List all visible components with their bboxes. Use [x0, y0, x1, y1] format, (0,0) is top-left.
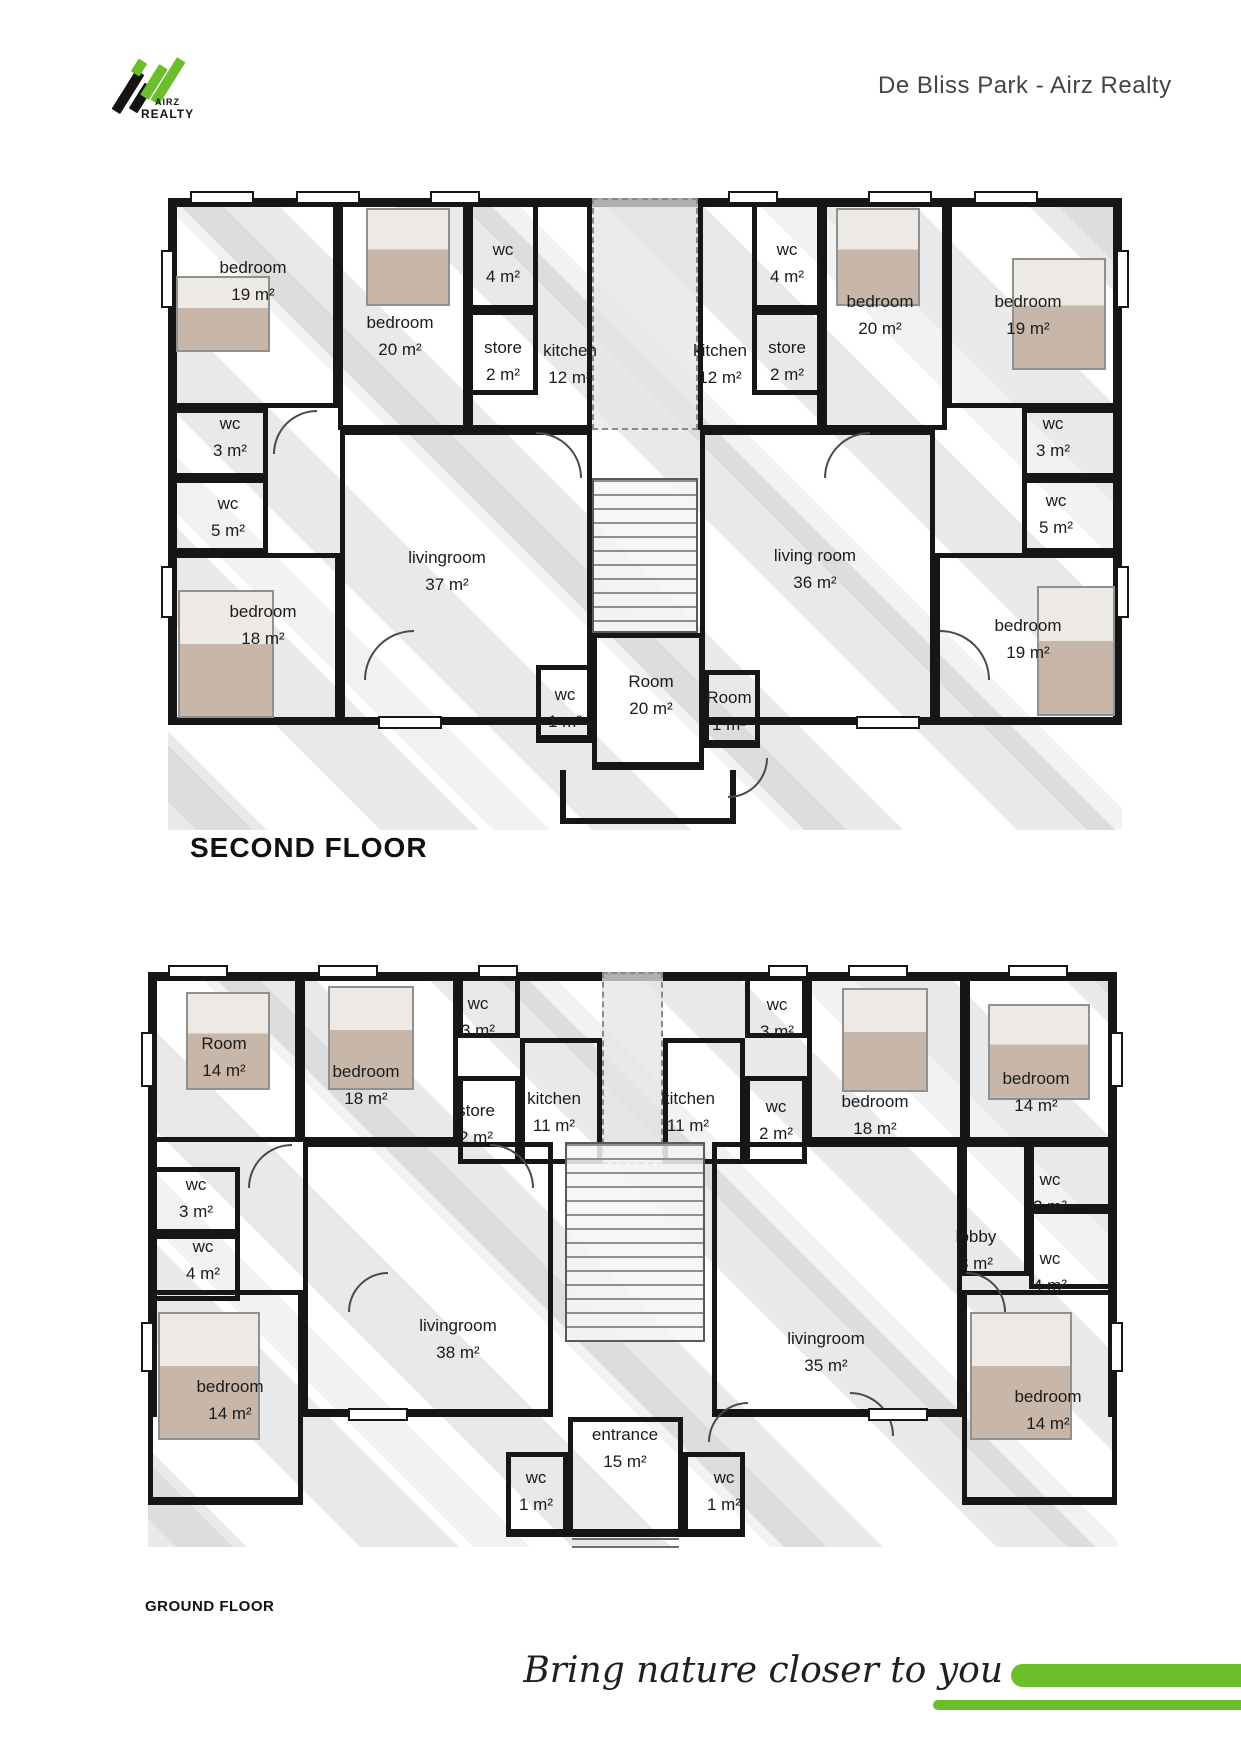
room-label: wc2 m²	[759, 1093, 793, 1147]
window	[478, 965, 518, 978]
room-label: kitchen12 m²	[543, 337, 597, 391]
room-label: bedroom18 m²	[332, 1058, 399, 1112]
room-label: Room14 m²	[201, 1030, 246, 1084]
tagline: Bring nature closer to you	[523, 1650, 1003, 1691]
room-name: bedroom	[994, 612, 1061, 639]
room-name: bedroom	[366, 309, 433, 336]
room-name: livingroom	[787, 1325, 864, 1352]
room-label: wc4 m²	[1033, 1245, 1067, 1299]
room-area: 3 m²	[179, 1198, 213, 1225]
room-name: kitchen	[693, 337, 747, 364]
room-area: 20 m²	[846, 315, 913, 342]
room-name: bedroom	[219, 254, 286, 281]
room-area: 3 m²	[1036, 437, 1070, 464]
room-name: wc	[519, 1464, 553, 1491]
room-label: bedroom14 m²	[196, 1373, 263, 1427]
room-area: 14 m²	[1014, 1410, 1081, 1437]
room-label: bedroom18 m²	[229, 598, 296, 652]
room-name: store	[768, 334, 806, 361]
room-name: kitchen	[661, 1085, 715, 1112]
room-area: 14 m²	[196, 1400, 263, 1427]
room-area: 4 m²	[486, 263, 520, 290]
room-label: Room20 m²	[628, 668, 673, 722]
window	[1110, 1032, 1123, 1087]
room-label: livingroom37 m²	[408, 544, 485, 598]
room-name: wc	[1039, 487, 1073, 514]
room-area: 18 m²	[332, 1085, 399, 1112]
ground-floor-plan: Room14 m²bedroom18 m²wc3 m²store2 m²kitc…	[148, 972, 1117, 1547]
room-label: wc3 m²	[1036, 410, 1070, 464]
room-label: bedroom19 m²	[994, 612, 1061, 666]
room-area: 3 m²	[213, 437, 247, 464]
room-label: bedroom18 m²	[841, 1088, 908, 1142]
room-area: 36 m²	[774, 569, 856, 596]
room-area: 2 m²	[457, 1124, 495, 1151]
room-area: 1 m²	[519, 1491, 553, 1518]
room-area: 4 m²	[770, 263, 804, 290]
room-name: livingroom	[419, 1312, 496, 1339]
room-area: 14 m²	[201, 1057, 246, 1084]
room-area: 20 m²	[628, 695, 673, 722]
door-arc	[728, 758, 768, 798]
room-label: wc3 m²	[760, 991, 794, 1045]
window	[868, 191, 932, 204]
room-label: wc1 m²	[707, 1464, 741, 1518]
window	[348, 1408, 408, 1421]
room-name: wc	[1033, 1245, 1067, 1272]
room-area: 35 m²	[787, 1352, 864, 1379]
room-name: bedroom	[1014, 1383, 1081, 1410]
airz-realty-logo: AIRZ REALTY	[115, 55, 195, 123]
shaft	[592, 198, 698, 430]
room-area: 3 m²	[461, 1017, 495, 1044]
room-label: lobby3 m²	[956, 1223, 997, 1277]
window	[1116, 566, 1129, 618]
room-name: entrance	[592, 1421, 658, 1448]
bed	[842, 988, 928, 1092]
room-label: entrance15 m²	[592, 1421, 658, 1475]
staircase	[592, 478, 698, 633]
room-area: 19 m²	[994, 639, 1061, 666]
room-label: kitchen11 m²	[527, 1085, 581, 1139]
room-name: bedroom	[994, 288, 1061, 315]
room-area: 1 m²	[548, 708, 582, 735]
room-label: kitchen12 m²	[693, 337, 747, 391]
room-name: wc	[486, 236, 520, 263]
room-area: 15 m²	[592, 1448, 658, 1475]
room-label: wc1 m²	[548, 681, 582, 735]
room-area: 38 m²	[419, 1339, 496, 1366]
room-label: bedroom14 m²	[1002, 1065, 1069, 1119]
room-label: wc3 m²	[461, 990, 495, 1044]
room-name: lobby	[956, 1223, 997, 1250]
room-area: 4 m²	[1033, 1272, 1067, 1299]
room-name: wc	[1036, 410, 1070, 437]
window	[190, 191, 254, 204]
room-label: livingroom38 m²	[419, 1312, 496, 1366]
room-area: 2 m²	[759, 1120, 793, 1147]
window	[1110, 1322, 1123, 1372]
window	[141, 1322, 154, 1372]
room-area: 19 m²	[994, 315, 1061, 342]
room-label: wc3 m²	[179, 1171, 213, 1225]
room-name: Room	[201, 1030, 246, 1057]
window	[974, 191, 1038, 204]
porch	[560, 770, 736, 824]
window	[141, 1032, 154, 1087]
room-name: wc	[461, 990, 495, 1017]
room-area: 18 m²	[841, 1115, 908, 1142]
room-label: livingroom35 m²	[787, 1325, 864, 1379]
room-area: 5 m²	[1039, 514, 1073, 541]
floor-caption-second: SECOND FLOOR	[190, 832, 428, 864]
room-label: wc2 m²	[1033, 1166, 1067, 1220]
room-area: 12 m²	[693, 364, 747, 391]
room-name: bedroom	[1002, 1065, 1069, 1092]
room-area: 11 m²	[661, 1112, 715, 1139]
room-area: 19 m²	[219, 281, 286, 308]
room-area: 3 m²	[956, 1250, 997, 1277]
room-label: bedroom14 m²	[1014, 1383, 1081, 1437]
window	[161, 250, 174, 308]
floor-caption-ground: GROUND FLOOR	[145, 1598, 274, 1615]
room-name: bedroom	[846, 288, 913, 315]
room-name: bedroom	[196, 1373, 263, 1400]
room-area: 4 m²	[186, 1260, 220, 1287]
room-label: wc4 m²	[486, 236, 520, 290]
room-label: bedroom20 m²	[846, 288, 913, 342]
room-name: store	[484, 334, 522, 361]
window	[161, 566, 174, 618]
room-area: 1 m²	[707, 1491, 741, 1518]
shaft	[602, 972, 663, 1164]
second-floor-plan: bedroom19 m²bedroom20 m²kitchen12 m²wc4 …	[168, 198, 1122, 830]
room-label: bedroom20 m²	[366, 309, 433, 363]
brochure-page: AIRZ REALTY De Bliss Park - Airz Realty …	[0, 0, 1241, 1754]
room-label: bedroom19 m²	[219, 254, 286, 308]
room-area: 12 m²	[543, 364, 597, 391]
room-area: 18 m²	[229, 625, 296, 652]
room-name: bedroom	[332, 1058, 399, 1085]
room-label: kitchen11 m²	[661, 1085, 715, 1139]
room-area: 2 m²	[1033, 1193, 1067, 1220]
room-label: store2 m²	[768, 334, 806, 388]
room-label: store2 m²	[457, 1097, 495, 1151]
room-name: bedroom	[229, 598, 296, 625]
window	[768, 965, 808, 978]
room-name: wc	[707, 1464, 741, 1491]
room-name: wc	[186, 1233, 220, 1260]
window	[868, 1408, 928, 1421]
room-name: wc	[770, 236, 804, 263]
window	[430, 191, 480, 204]
window	[378, 716, 442, 729]
room-label: living room36 m²	[774, 542, 856, 596]
room-area: 3 m²	[760, 1018, 794, 1045]
logo-text-realty: REALTY	[141, 107, 194, 121]
room-name: wc	[548, 681, 582, 708]
room-name: wc	[759, 1093, 793, 1120]
room-area: 20 m²	[366, 336, 433, 363]
room-area: 2 m²	[484, 361, 522, 388]
room-name: wc	[760, 991, 794, 1018]
logo-text-airz: AIRZ	[155, 97, 180, 107]
room-label: Room1 m²	[706, 684, 751, 738]
window	[168, 965, 228, 978]
window	[296, 191, 360, 204]
room-label: wc4 m²	[186, 1233, 220, 1287]
bed	[366, 208, 450, 306]
window	[728, 191, 778, 204]
accent-bar	[1011, 1664, 1241, 1687]
room-area: 37 m²	[408, 571, 485, 598]
room-name: Room	[706, 684, 751, 711]
room-area: 14 m²	[1002, 1092, 1069, 1119]
room-name: living room	[774, 542, 856, 569]
window	[848, 965, 908, 978]
room-name: Room	[628, 668, 673, 695]
window	[1008, 965, 1068, 978]
room-name: livingroom	[408, 544, 485, 571]
accent-bar	[933, 1700, 1241, 1710]
room-label: wc1 m²	[519, 1464, 553, 1518]
room-label: wc3 m²	[213, 410, 247, 464]
window	[318, 965, 378, 978]
window	[1116, 250, 1129, 308]
room-label: wc4 m²	[770, 236, 804, 290]
room-name: wc	[211, 490, 245, 517]
room-label: bedroom19 m²	[994, 288, 1061, 342]
staircase	[565, 1142, 705, 1342]
room-name: kitchen	[543, 337, 597, 364]
room-area: 11 m²	[527, 1112, 581, 1139]
page-title: De Bliss Park - Airz Realty	[878, 72, 1172, 100]
room-name: kitchen	[527, 1085, 581, 1112]
room-name: wc	[1033, 1166, 1067, 1193]
room-area: 5 m²	[211, 517, 245, 544]
room-area: 1 m²	[706, 711, 751, 738]
room-label: wc5 m²	[1039, 487, 1073, 541]
room-area: 2 m²	[768, 361, 806, 388]
room-name: bedroom	[841, 1088, 908, 1115]
window	[856, 716, 920, 729]
room-label: store2 m²	[484, 334, 522, 388]
room-name: wc	[213, 410, 247, 437]
room-name: wc	[179, 1171, 213, 1198]
room-label: wc5 m²	[211, 490, 245, 544]
room-name: store	[457, 1097, 495, 1124]
